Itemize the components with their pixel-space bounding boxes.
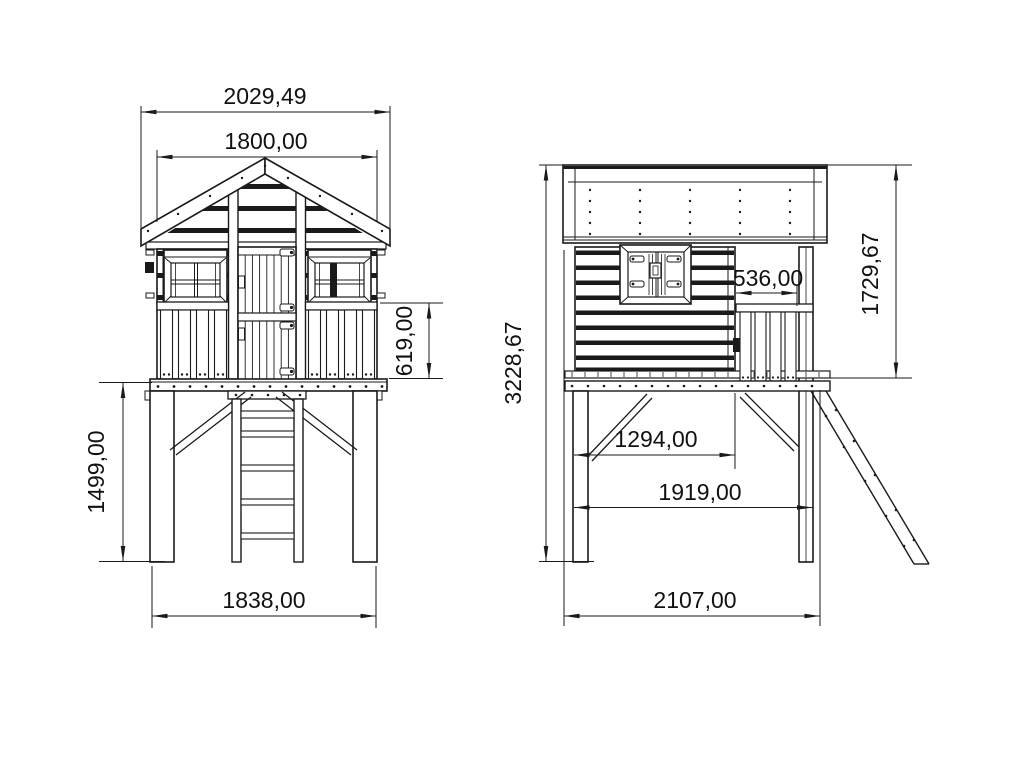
ladder-rung — [241, 431, 294, 437]
side-leg-left — [573, 391, 588, 562]
door-post-right — [296, 191, 306, 379]
dim-value-house-width: 1800,00 — [224, 128, 307, 154]
dim-value-roof-overhang-width: 2029,49 — [223, 83, 306, 109]
ladder-stringer-right — [294, 399, 303, 562]
shutter-latch — [650, 263, 661, 278]
dim-value-inner-span: 1294,00 — [614, 426, 697, 452]
front-door — [238, 247, 296, 386]
front-window-left — [164, 250, 227, 303]
front-leg-right — [353, 391, 377, 562]
playhouse-blueprint: 2029,49 1800,00 619,00 1499,00 1838,00 — [0, 0, 1024, 768]
ladder-rung — [241, 499, 294, 505]
side-corner-post — [799, 247, 813, 562]
technical-drawing-page: 2029,49 1800,00 619,00 1499,00 1838,00 — [0, 0, 1024, 768]
front-window-right — [308, 250, 371, 303]
ladder-rung — [241, 465, 294, 471]
dim-value-porch-depth: 536,00 — [733, 265, 803, 291]
side-rim-joist — [565, 381, 830, 391]
ladder-stringer-left — [232, 399, 241, 562]
dim-value-leg-height: 1499,00 — [83, 430, 109, 513]
side-roof — [563, 165, 827, 243]
ladder-rung — [241, 533, 294, 539]
dim-value-total-depth: 2107,00 — [653, 587, 736, 613]
front-leg-left — [150, 391, 174, 562]
platform-screw-dots — [157, 385, 384, 388]
dim-value-base-width: 1838,00 — [222, 587, 305, 613]
dim-value-house-section-height: 1729,67 — [857, 232, 883, 315]
door-latch-lower — [239, 328, 245, 340]
dim-value-total-height: 3228,67 — [500, 321, 526, 404]
door-split-rail — [238, 313, 296, 321]
front-wall-latch — [145, 262, 154, 273]
side-window — [620, 245, 691, 304]
window-dark-mullion — [330, 263, 337, 297]
dim-value-railing-height: 619,00 — [391, 306, 417, 376]
door-post-left — [229, 190, 239, 379]
dim-value-outer-leg-span: 1919,00 — [658, 479, 741, 505]
door-latch-upper — [239, 276, 245, 288]
ladder-rung — [241, 411, 294, 418]
